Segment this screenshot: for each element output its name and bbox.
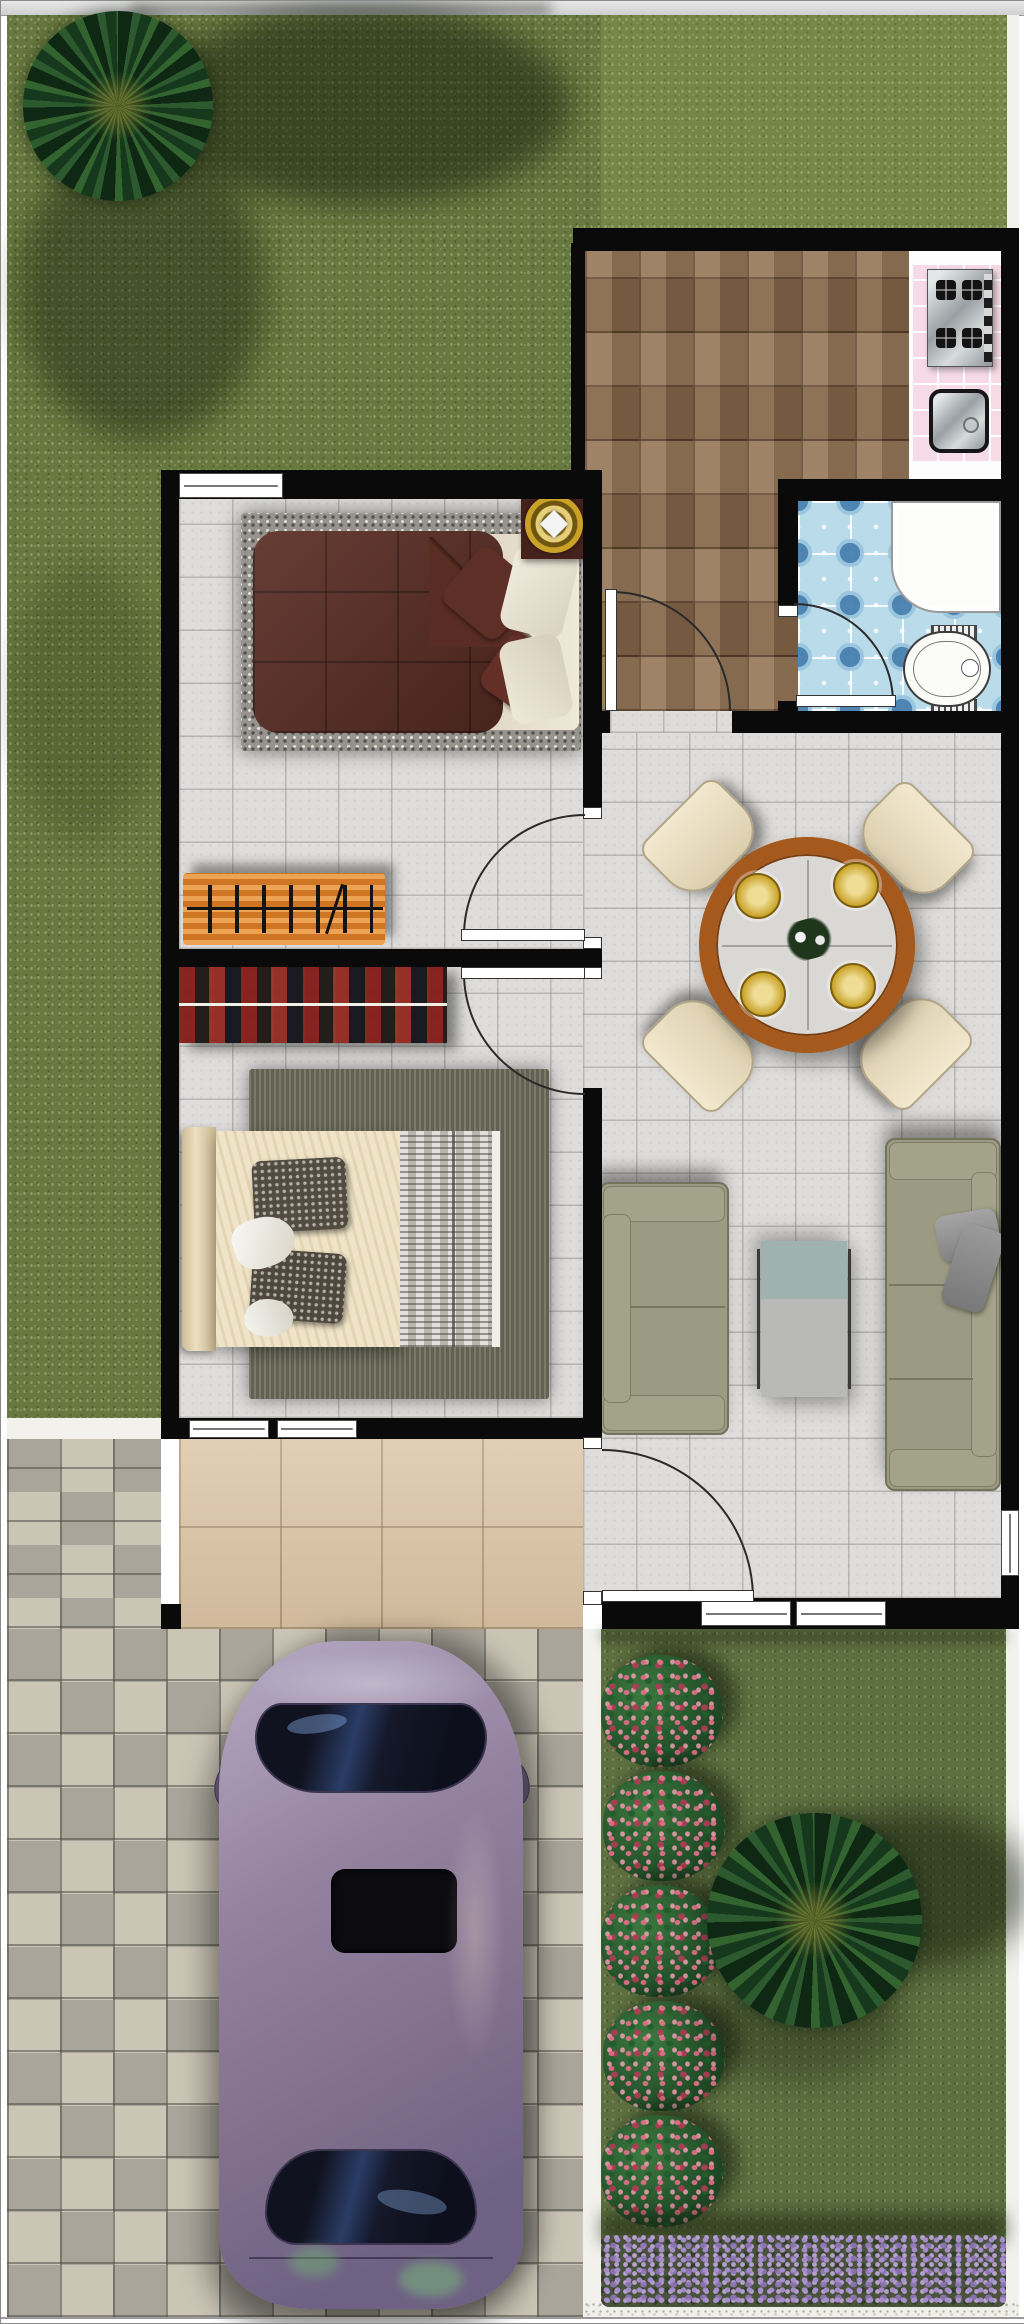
wall-bedroom-divider [161, 949, 602, 967]
lawn-light-overlay [601, 15, 1007, 241]
stove-burner-icon [936, 328, 956, 348]
place-setting [830, 963, 876, 1009]
coffee-table-rail [848, 1249, 851, 1389]
wall-bathroom-west-a [778, 501, 798, 616]
living-window-south [701, 1601, 791, 1626]
bed2-headboard [182, 1127, 216, 1351]
place-setting [833, 862, 879, 908]
door-jamb [583, 1591, 602, 1605]
car-rear-window [265, 2149, 477, 2245]
bench-glyph-line [187, 907, 383, 910]
sofa-cushion-seam [889, 1378, 973, 1380]
bedroom1-window [179, 473, 283, 498]
rose-bush [601, 1885, 721, 1997]
kitchen-doorway-floor-patch [610, 711, 732, 733]
sofa-back [603, 1214, 631, 1403]
coffee-table-rail [757, 1249, 760, 1389]
car-windshield [255, 1703, 487, 1793]
door-jamb [583, 967, 602, 979]
windshield-reflection [286, 1711, 348, 1737]
bedroom2-window [277, 1420, 357, 1438]
wall-dining-north-a [583, 711, 610, 733]
sofa-two-seat [599, 1182, 729, 1435]
wall-bedroom1-east [583, 470, 602, 819]
wall-bedroom2-east [583, 1088, 602, 1449]
garden-right-margin [1006, 1629, 1019, 2317]
garden-left-path [583, 1629, 601, 2317]
toilet-drain-icon [961, 659, 979, 677]
bedroom2-window [189, 1420, 269, 1438]
car-green-reflection [399, 2261, 463, 2297]
coffee-table [761, 1241, 847, 1397]
wall-bathroom-north [778, 479, 1006, 501]
lavender-hedge [601, 2235, 1006, 2307]
wall-dining-north-b [732, 711, 1019, 733]
car-trunk-line [249, 2257, 493, 2259]
palm-tree-garden-icon [707, 1813, 922, 2028]
door-leaf-bathroom [796, 695, 896, 707]
door-jamb [583, 937, 602, 949]
sink-drain-icon [963, 417, 979, 433]
wall-kitchen-north [573, 228, 1019, 251]
bed2-blanket-edge [492, 1131, 500, 1347]
living-window-south [796, 1601, 886, 1626]
console-bench [183, 873, 385, 945]
door-leaf-bedroom1 [461, 929, 585, 941]
wall-east [1001, 241, 1019, 1629]
stove-burner-icon [936, 280, 956, 300]
door-jamb [583, 807, 602, 819]
living-window-east [1001, 1510, 1019, 1576]
shelf-divider-line [179, 1003, 447, 1006]
car [219, 1641, 523, 2309]
stove-dial-strip [984, 274, 992, 362]
car-green-reflection [289, 2247, 339, 2277]
floor-plan-canvas [0, 0, 1024, 2324]
sidewalk-strip [7, 1418, 161, 1439]
stove-burner-icon [962, 328, 982, 348]
rose-bush [601, 2115, 723, 2227]
bed2-blanket [400, 1131, 500, 1347]
toilet-bowl [903, 631, 991, 707]
stove-burner-icon [962, 280, 982, 300]
coffee-table-glass [761, 1241, 847, 1299]
door-jamb [583, 1437, 602, 1449]
right-margin-top [1007, 15, 1019, 241]
sofa-cushion-seam [631, 1306, 725, 1308]
toilet [903, 631, 991, 707]
rose-bush [603, 1771, 725, 1881]
place-setting [740, 971, 786, 1017]
lawn-shade-left [7, 561, 161, 841]
wall-kitchen-west [571, 243, 585, 478]
bed2-blanket-seam [452, 1131, 455, 1347]
door-leaf-entry [602, 1590, 754, 1602]
place-setting [735, 873, 781, 919]
rose-bush [601, 1655, 723, 1767]
gold-ornament-diamond [540, 510, 568, 538]
door-leaf-kitchen [605, 589, 617, 711]
stove [927, 269, 993, 367]
porch-post [161, 1604, 181, 1629]
garden-top-shade [601, 1629, 1006, 1643]
kitchen-sink [929, 389, 989, 453]
shelf-unit [179, 967, 447, 1043]
palm-tree-top-left-icon [23, 11, 213, 201]
car-side-shine [445, 1801, 505, 2061]
frame-bottom-line [1, 2317, 1024, 2319]
sofa-three-seat [885, 1138, 1001, 1491]
car-sunroof [331, 1869, 457, 1953]
porch-floor [179, 1439, 583, 1631]
door-leaf-bedroom2 [461, 967, 585, 979]
gold-ornament-icon [525, 495, 583, 553]
shower-tray [891, 501, 1001, 613]
rear-window-reflection [376, 2185, 449, 2219]
